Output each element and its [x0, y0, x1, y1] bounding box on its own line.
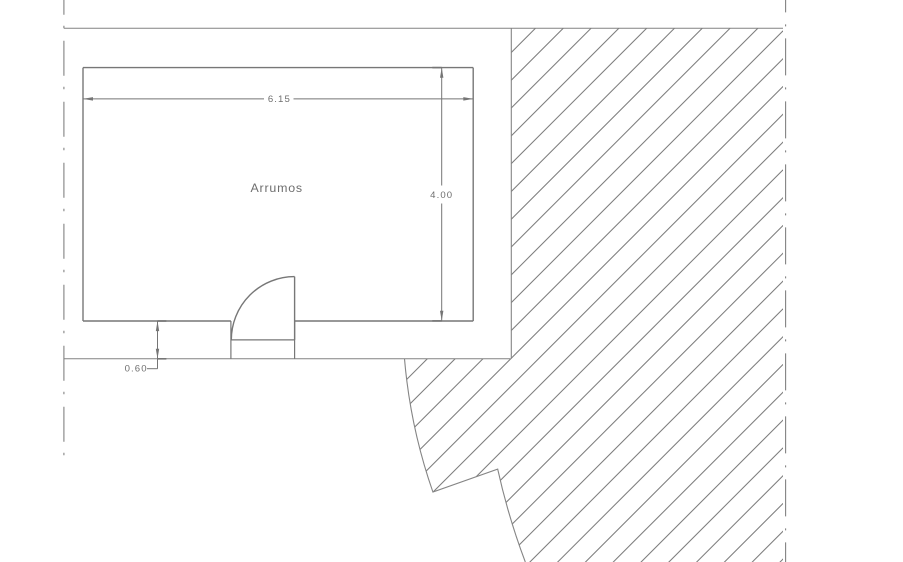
svg-text:0.60: 0.60 [125, 364, 148, 375]
svg-text:4.00: 4.00 [430, 190, 453, 201]
svg-text:6.15: 6.15 [268, 94, 291, 105]
svg-text:Arrumos: Arrumos [250, 181, 302, 195]
